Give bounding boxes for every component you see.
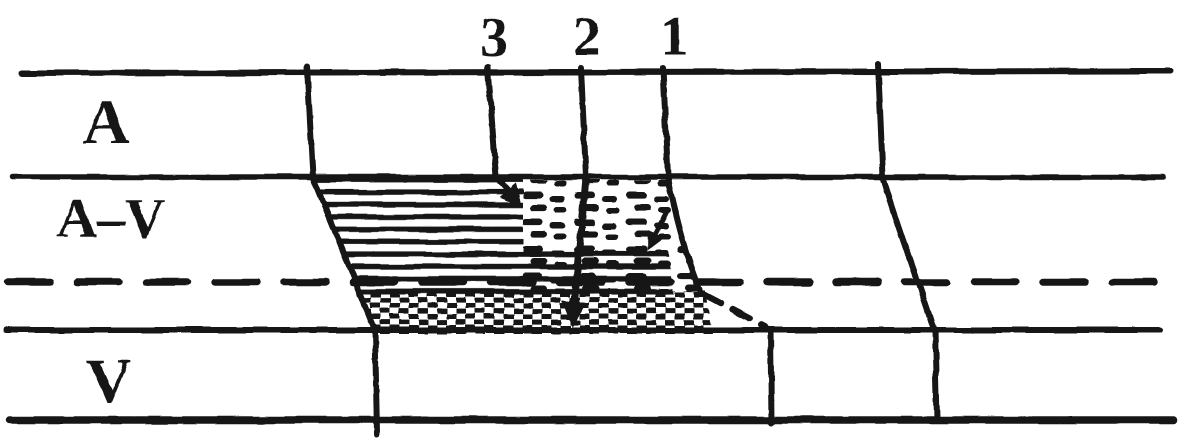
beat-number-1: 1: [660, 6, 688, 68]
av-horizontal-hatch-extension: [523, 246, 674, 298]
ladder-diagram-canvas: A A–V V 3 2 1: [0, 0, 1181, 439]
atrial-tier-label: A: [83, 86, 129, 157]
impulse-left-ventricular-line: [375, 330, 377, 434]
ventricular-tier-label: V: [86, 345, 132, 416]
beat-number-3: 3: [480, 7, 508, 69]
impulse-beat1-ventricular-line: [771, 330, 772, 423]
atrial-top-boundary-line: [22, 71, 1170, 73]
beat-number-2: 2: [573, 6, 601, 68]
ladder-diagram-figure: A A–V V 3 2 1: [0, 0, 1181, 439]
av-junction-tier-label: A–V: [57, 188, 166, 250]
impulse-right-ventricular-line: [935, 330, 937, 420]
